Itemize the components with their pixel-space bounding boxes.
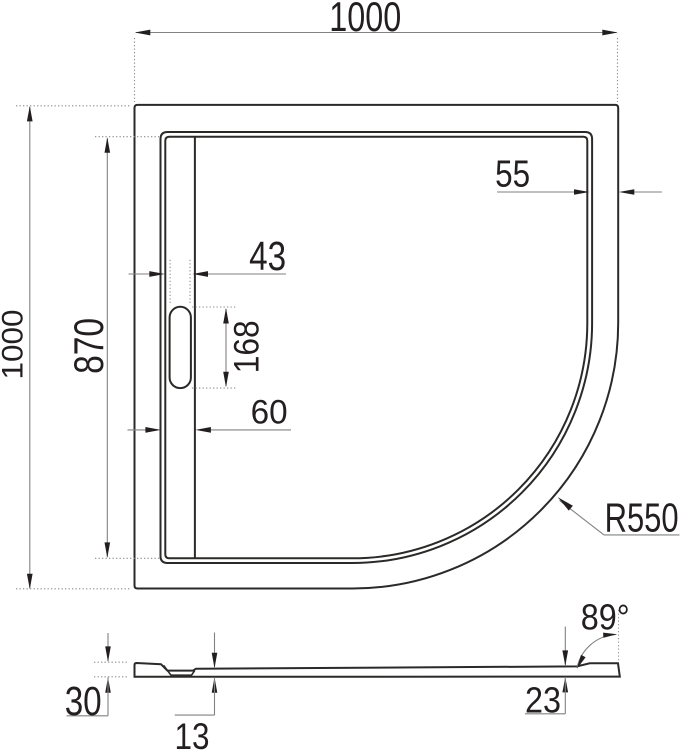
svg-text:870: 870 — [65, 318, 112, 374]
svg-text:30: 30 — [65, 678, 102, 724]
svg-text:13: 13 — [175, 716, 210, 752]
svg-text:89°: 89° — [581, 596, 630, 637]
svg-text:1000: 1000 — [0, 310, 29, 380]
svg-text:168: 168 — [228, 320, 267, 373]
svg-text:R550: R550 — [605, 494, 679, 540]
svg-text:60: 60 — [251, 394, 288, 432]
svg-text:55: 55 — [495, 154, 530, 196]
svg-text:23: 23 — [525, 680, 561, 720]
svg-text:43: 43 — [249, 233, 286, 279]
svg-text:1000: 1000 — [329, 0, 401, 40]
